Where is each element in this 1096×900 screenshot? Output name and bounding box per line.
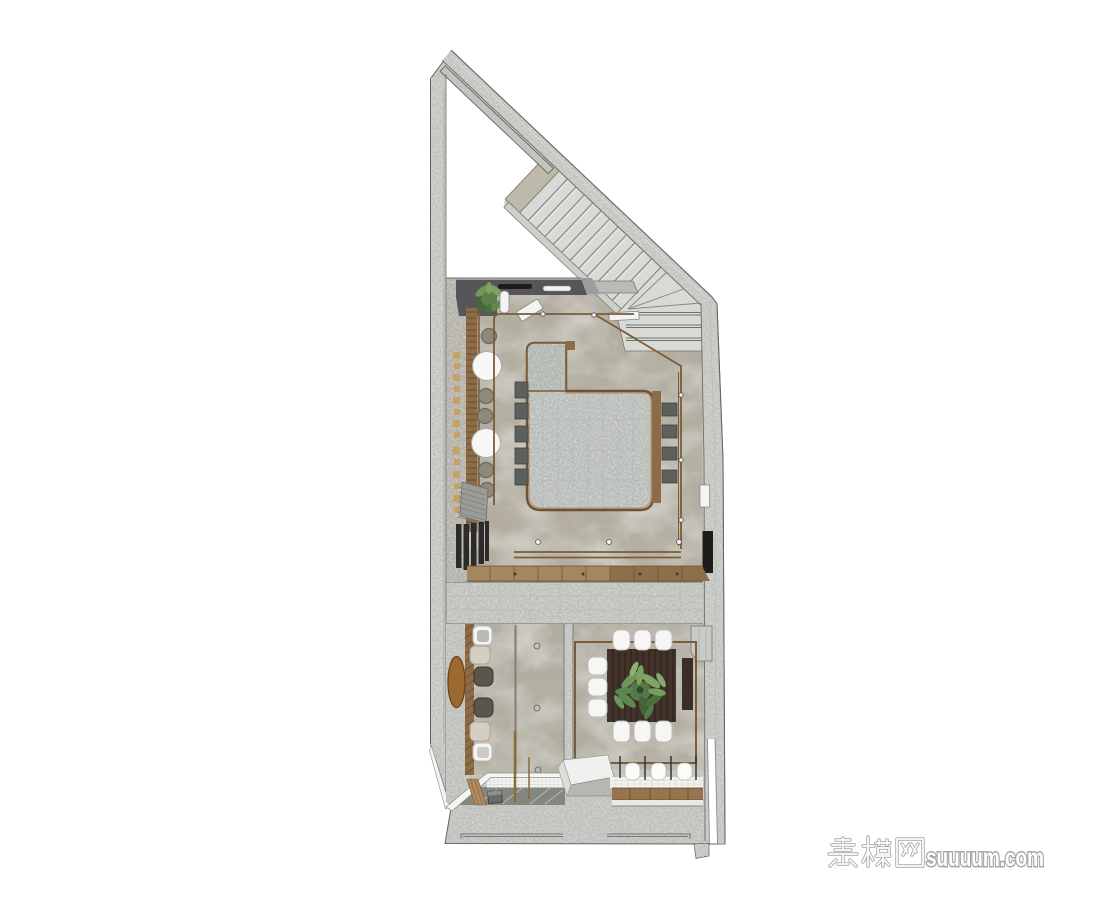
svg-text:suuuum.com: suuuum.com bbox=[926, 844, 1044, 872]
